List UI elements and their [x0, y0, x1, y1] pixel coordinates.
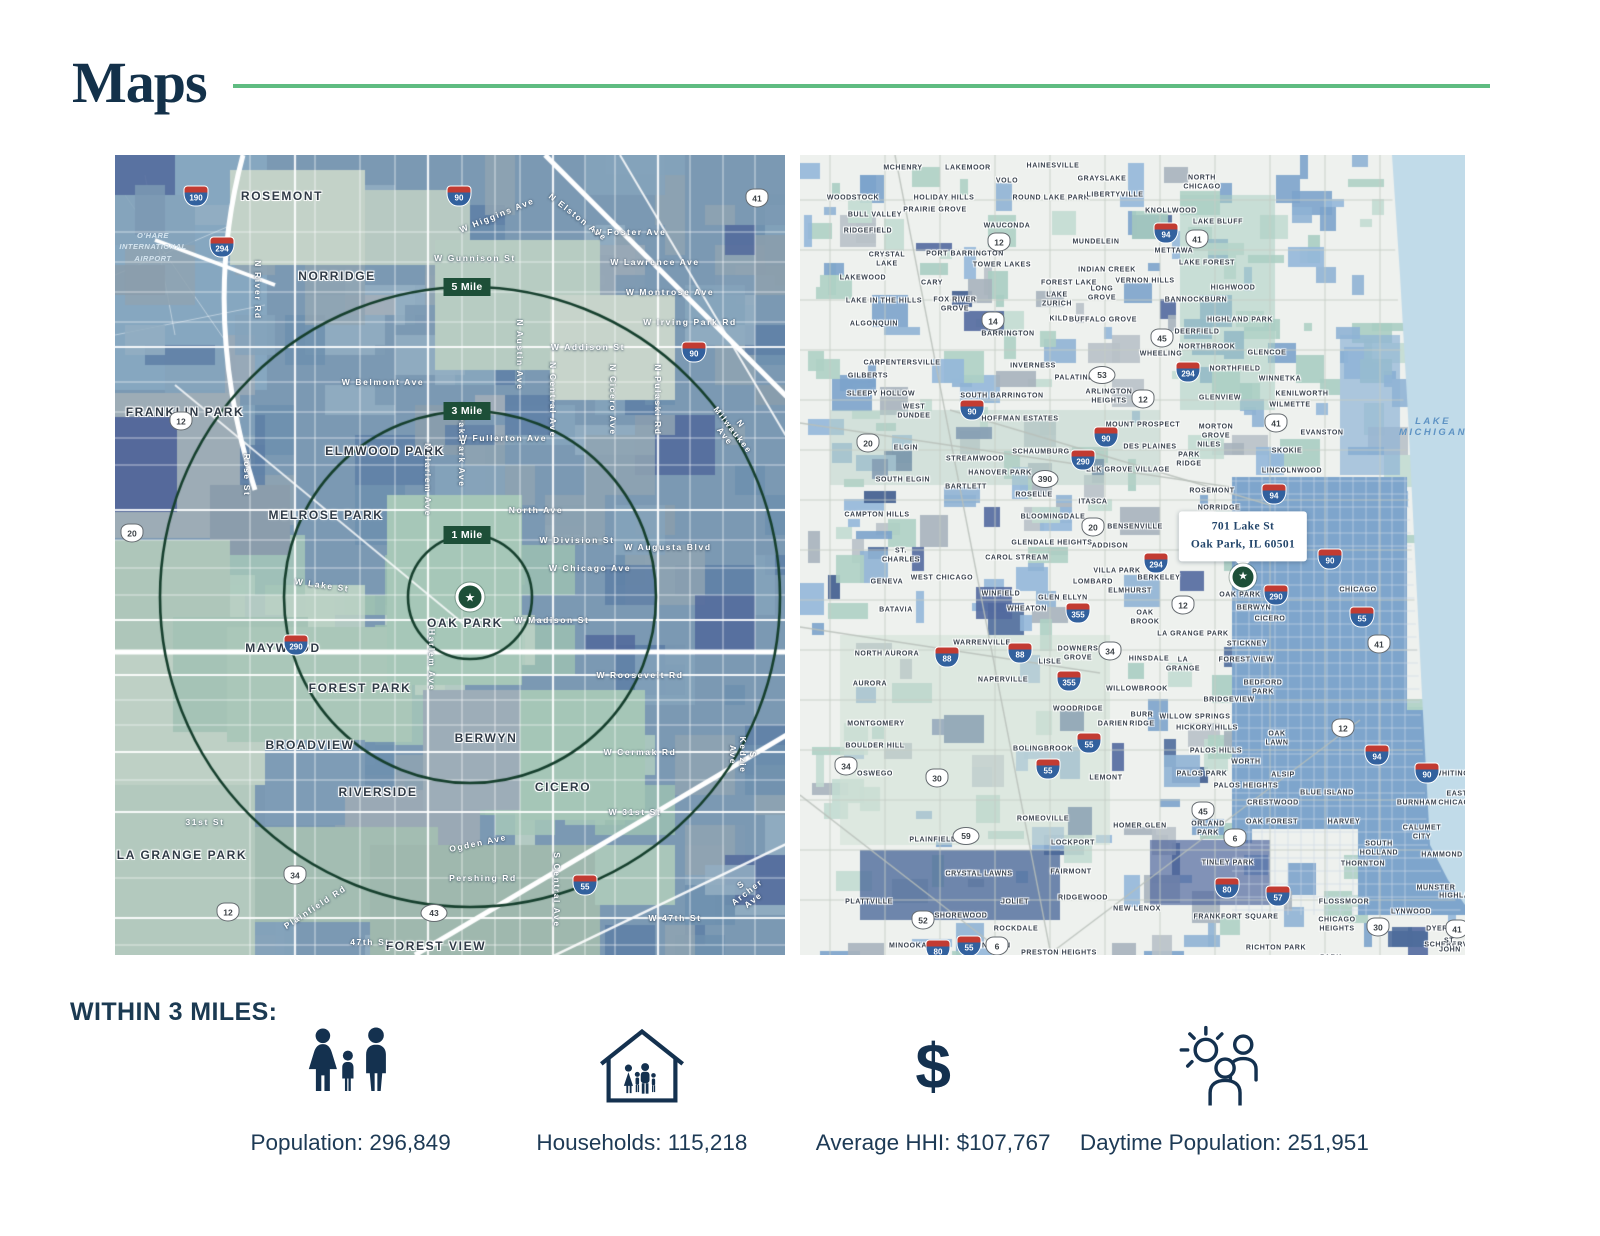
- daytime-population-icon: [1177, 1018, 1271, 1114]
- map-city-label: MUNSTER: [1417, 883, 1456, 892]
- region-map-overlay: MCHENRYLAKEMOORVOLOHAINESVILLEGRAYSLAKEN…: [800, 155, 1465, 955]
- map-street-label: N River Rd: [253, 260, 263, 319]
- highway-shield-52: 52: [912, 911, 935, 930]
- map-city-label: LIBERTYVILLE: [1087, 190, 1144, 199]
- highway-shield-290: 290: [1071, 450, 1096, 471]
- map-street-label: N Central Ave: [548, 362, 558, 438]
- map-city-label: METTAWA: [1155, 246, 1194, 255]
- highway-shield-59: 59: [953, 827, 980, 845]
- map-city-label: BLOOMINGDALE: [1021, 512, 1086, 521]
- map-city-label: CRYSTAL LAWNS: [945, 869, 1012, 878]
- map-city-label: PLAINFIELD: [909, 835, 956, 844]
- map-city-label: STREAMWOOD: [946, 454, 1004, 463]
- average-hhi-value: Average HHI: $107,767: [816, 1130, 1051, 1156]
- map-city-label: CICERO: [535, 780, 591, 794]
- map-city-label: WAUCONDA: [984, 221, 1031, 230]
- map-city-label: MORTON GROVE: [1199, 423, 1234, 442]
- map-street-label: N Milwaukee Ave: [704, 398, 763, 461]
- map-street-label: W Augusta Blvd: [624, 542, 711, 552]
- map-city-label: PARK RIDGE: [1176, 451, 1201, 470]
- map-city-label: LOCKPORT: [1051, 838, 1095, 847]
- map-city-label: MCHENRY: [883, 163, 922, 172]
- stat-households: Households: 115,218: [496, 1018, 787, 1156]
- highway-shield-14: 14: [982, 312, 1005, 331]
- map-city-label: PALOS HILLS: [1190, 746, 1242, 755]
- map-street-label: W Lawrence Ave: [610, 257, 699, 267]
- map-street-label: N Oak Park Ave: [457, 402, 467, 487]
- map-city-label: DYER: [1426, 924, 1448, 933]
- highway-shield-55: 55: [1077, 733, 1102, 754]
- highway-shield-30: 30: [1367, 918, 1390, 937]
- map-city-label: STICKNEY: [1227, 639, 1267, 648]
- map-city-label: BOLINGBROOK: [1013, 744, 1073, 753]
- lake-michigan-label: LAKE MICHIGAN: [1399, 416, 1465, 438]
- map-city-label: HOLIDAY HILLS: [914, 193, 975, 202]
- map-street-label: N Pulaski Rd: [653, 364, 663, 435]
- callout-address-line2: Oak Park, IL 60501: [1191, 536, 1295, 554]
- map-city-label: NEW LENOX: [1113, 904, 1161, 913]
- map-city-label: KNOLLWOOD: [1145, 206, 1197, 215]
- map-city-label: HOMER GLEN: [1113, 821, 1166, 830]
- map-city-label: SHOREWOOD: [935, 911, 988, 920]
- map-city-label: GLENDALE HEIGHTS: [1011, 538, 1092, 547]
- map-city-label: FRANKLIN PARK: [126, 405, 245, 419]
- map-city-label: FOX RIVER GROVE: [933, 296, 976, 315]
- map-city-label: BURNHAM: [1397, 798, 1437, 807]
- map-city-label: ELGIN: [894, 443, 918, 452]
- map-city-label: NORTH AURORA: [855, 649, 920, 658]
- highway-shield-55: 55: [957, 936, 982, 956]
- highway-shield-34: 34: [284, 866, 307, 885]
- map-street-label: S Archer Ave: [723, 868, 771, 915]
- highway-shield-294: 294: [1176, 362, 1201, 383]
- map-city-label: WILLOW SPRINGS: [1159, 712, 1230, 721]
- map-city-label: BUFFALO GROVE: [1069, 315, 1137, 324]
- map-city-label: NORRIDGE: [298, 269, 375, 283]
- title-rule: [233, 84, 1490, 88]
- stats-row: Population: 296,849: [205, 1018, 1370, 1156]
- map-city-label: OAK LAWN: [1265, 730, 1288, 749]
- highway-shield-12: 12: [1132, 390, 1155, 409]
- ring-distance-badge: 5 Mile: [444, 278, 491, 296]
- map-city-label: BERWYN: [1237, 603, 1272, 612]
- map-city-label: ELMWOOD PARK: [325, 444, 445, 458]
- map-city-label: ROCKDALE: [994, 924, 1038, 933]
- map-city-label: FOREST PARK: [309, 681, 412, 695]
- map-street-label: W Higgins Ave: [458, 195, 536, 234]
- map-city-label: LOMBARD: [1073, 577, 1113, 586]
- map-city-label: ROMEOVILLE: [1017, 814, 1069, 823]
- map-city-label: ORLAND PARK: [1191, 820, 1225, 839]
- map-city-label: ST. JOHN: [1439, 937, 1461, 955]
- map-city-label: EVANSTON: [1300, 428, 1343, 437]
- highway-shield-90: 90: [682, 342, 707, 363]
- map-city-label: BULL VALLEY: [848, 210, 902, 219]
- map-city-label: LEMONT: [1089, 773, 1122, 782]
- map-city-label: RIDGEWOOD: [1058, 893, 1108, 902]
- map-street-label: W Addison St: [551, 342, 625, 352]
- map-city-label: HIGHLAND: [1439, 891, 1465, 900]
- map-city-label: THORNTON: [1341, 859, 1385, 868]
- map-street-label: W Madison St: [515, 615, 590, 625]
- page-header: Maps: [72, 54, 1490, 112]
- highway-shield-390: 390: [1032, 470, 1059, 488]
- highway-shield-90: 90: [447, 186, 472, 207]
- map-city-label: GRAYSLAKE: [1078, 174, 1127, 183]
- map-city-label: SLEEPY HOLLOW: [847, 389, 915, 398]
- map-city-label: DOWNERS GROVE: [1058, 645, 1099, 664]
- stat-population: Population: 296,849: [205, 1018, 496, 1156]
- map-city-label: LISLE: [1039, 657, 1062, 666]
- map-city-label: INDIAN CREEK: [1078, 265, 1136, 274]
- highway-shield-34: 34: [1099, 642, 1122, 661]
- map-city-label: OAK PARK: [1219, 590, 1261, 599]
- highway-shield-55: 55: [573, 875, 598, 896]
- highway-shield-294: 294: [1144, 553, 1169, 574]
- airport-label: O'HARE INTERNATIONAL AIRPORT: [119, 230, 186, 264]
- highway-shield-41: 41: [1446, 920, 1466, 939]
- map-street-label: Plainfield Rd: [282, 883, 348, 931]
- map-street-label: N Austin Ave: [515, 319, 525, 390]
- map-street-label: 47th St: [350, 937, 390, 947]
- map-city-label: OAK PARK: [427, 616, 503, 630]
- map-city-label: RIDGEFIELD: [844, 226, 892, 235]
- map-city-label: MELROSE PARK: [269, 508, 384, 522]
- highway-shield-94: 94: [1365, 745, 1390, 766]
- highway-shield-20: 20: [857, 434, 880, 453]
- map-city-label: GLEN ELLYN: [1038, 593, 1088, 602]
- highway-shield-6: 6: [986, 937, 1009, 956]
- map-city-label: JOLIET: [1001, 897, 1029, 906]
- map-city-label: FRANKFORT SQUARE: [1193, 912, 1278, 921]
- map-city-label: HIGHLAND PARK: [1207, 315, 1273, 324]
- highway-shield-57: 57: [1266, 886, 1291, 907]
- highway-shield-12: 12: [1332, 719, 1355, 738]
- map-city-label: WARRENVILLE: [953, 638, 1011, 647]
- highway-shield-94: 94: [1154, 223, 1179, 244]
- map-city-label: LAKE ZURICH: [1042, 291, 1072, 310]
- map-city-label: CHANNAHON: [959, 941, 1010, 950]
- map-street-label: W Chicago Ave: [549, 563, 631, 573]
- map-city-label: LYNWOOD: [1391, 907, 1431, 916]
- highway-shield-34: 34: [835, 757, 858, 776]
- highway-shield-12: 12: [217, 903, 240, 922]
- map-city-label: ARLINGTON HEIGHTS: [1086, 388, 1133, 407]
- highway-shield-30: 30: [926, 769, 949, 788]
- map-city-label: PRAIRIE GROVE: [903, 205, 966, 214]
- highway-shield-12: 12: [988, 233, 1011, 252]
- map-city-label: BOULDER HILL: [845, 741, 904, 750]
- highway-shield-355: 355: [1066, 603, 1091, 624]
- map-city-label: VILLA PARK: [1093, 566, 1140, 575]
- map-street-label: W Division St: [539, 535, 614, 545]
- highway-shield-41: 41: [746, 189, 769, 208]
- highway-shield-290: 290: [284, 635, 309, 656]
- map-city-label: CALUMET CITY: [1403, 824, 1441, 843]
- stat-daytime-population: Daytime Population: 251,951: [1079, 1018, 1370, 1156]
- map-city-label: CHICAGO: [1339, 585, 1376, 594]
- map-city-label: OAK FOREST: [1246, 817, 1298, 826]
- map-city-label: WILLOWBROOK: [1106, 684, 1168, 693]
- callout-address-line1: 701 Lake St: [1191, 518, 1295, 536]
- map-city-label: BARTLETT: [945, 482, 987, 491]
- map-city-label: SOUTH BARRINGTON: [960, 391, 1043, 400]
- map-city-label: WOODRIDGE: [1053, 704, 1103, 713]
- map-city-label: LA GRANGE PARK: [1157, 629, 1228, 638]
- map-street-label: W Belmont Ave: [342, 377, 425, 387]
- map-city-label: GENEVA: [871, 577, 904, 586]
- map-street-label: S Central Ave: [552, 852, 562, 927]
- highway-shield-55: 55: [1036, 759, 1061, 780]
- map-city-label: ROUND LAKE PARK: [1013, 193, 1090, 202]
- population-value: Population: 296,849: [251, 1130, 451, 1156]
- map-city-label: CARPENTERSVILLE: [863, 358, 940, 367]
- map-city-label: NAPERVILLE: [978, 675, 1028, 684]
- map-city-label: FOREST VIEW: [386, 939, 486, 953]
- map-city-label: PRESTON HEIGHTS: [1021, 948, 1097, 955]
- radius-map[interactable]: ROSEMONTNORRIDGEFRANKLIN PARKELMWOOD PAR…: [115, 155, 785, 955]
- map-city-label: MOUNT PROSPECT: [1106, 420, 1181, 429]
- map-city-label: MONTGOMERY: [847, 719, 904, 728]
- map-city-label: WINFIELD: [982, 589, 1021, 598]
- map-city-label: SCHERERVILLE: [1424, 940, 1465, 949]
- highway-shield-88: 88: [935, 647, 960, 668]
- highway-shield-12: 12: [1172, 596, 1195, 615]
- map-city-label: BARRINGTON: [981, 329, 1034, 338]
- map-city-label: ELK GROVE VILLAGE: [1086, 465, 1170, 474]
- map-city-label: SOUTH HOLLAND: [1360, 840, 1398, 859]
- map-city-label: GLENCOE: [1248, 348, 1287, 357]
- map-city-label: TINLEY PARK: [1202, 858, 1255, 867]
- map-city-label: WEST DUNDEE: [897, 403, 930, 422]
- map-city-label: BRIDGEVIEW: [1203, 695, 1254, 704]
- map-street-label: W Fullerton Ave: [459, 433, 547, 443]
- highway-shield-90: 90: [960, 400, 985, 421]
- map-city-label: BLUE ISLAND: [1300, 788, 1354, 797]
- page-title: Maps: [72, 54, 207, 112]
- map-city-label: NILES: [1197, 440, 1221, 449]
- map-city-label: ST. CHARLES: [882, 547, 920, 566]
- map-city-label: PORT BARRINGTON: [926, 249, 1004, 258]
- map-city-label: SKOKIE: [1272, 446, 1302, 455]
- map-city-label: FAIRMONT: [1050, 867, 1091, 876]
- map-city-label: TOWER LAKES: [973, 260, 1031, 269]
- highway-shield-190: 190: [184, 186, 209, 207]
- map-city-label: LA GRANGE: [1166, 656, 1200, 675]
- map-street-label: W 31st St: [609, 807, 662, 817]
- households-value: Households: 115,218: [536, 1130, 747, 1156]
- map-city-label: BEDFORD PARK: [1244, 679, 1283, 698]
- map-city-label: MUNDELEIN: [1072, 237, 1119, 246]
- map-city-label: VOLO: [996, 176, 1018, 185]
- map-city-label: ITASCA: [1078, 497, 1107, 506]
- map-street-label: W Lake St: [294, 576, 350, 594]
- stat-average-hhi: $ Average HHI: $107,767: [788, 1018, 1079, 1156]
- map-city-label: SCHAUMBURG: [1012, 447, 1069, 456]
- map-city-label: EAST CHICAGO: [1438, 790, 1465, 809]
- map-street-label: North Ave: [509, 505, 563, 515]
- map-city-label: BENSENVILLE: [1107, 522, 1163, 531]
- map-city-label: LAKE FOREST: [1179, 258, 1235, 267]
- map-street-label: W Montrose Ave: [626, 287, 714, 297]
- map-city-label: FOREST VIEW: [1219, 655, 1274, 664]
- map-city-label: PLATTVILLE: [845, 897, 893, 906]
- highway-shield-53: 53: [1089, 366, 1116, 384]
- highway-shield-55: 55: [1350, 607, 1375, 628]
- map-street-label: N Harlem Ave: [423, 443, 433, 517]
- map-city-label: PALATINE: [1055, 373, 1094, 382]
- map-city-label: BERWYN: [455, 731, 518, 745]
- map-city-label: CICERO: [1255, 614, 1286, 623]
- highway-shield-20: 20: [1082, 518, 1105, 537]
- highway-shield-290: 290: [1264, 585, 1289, 606]
- address-callout: 701 Lake St Oak Park, IL 60501: [1179, 511, 1307, 561]
- map-city-label: ROSEMONT: [241, 189, 323, 203]
- map-city-label: CAMPTON HILLS: [844, 510, 909, 519]
- highway-shield-41: 41: [1265, 414, 1288, 433]
- map-street-label: N Cicero Ave: [608, 364, 618, 435]
- map-city-label: ALGONQUIN: [850, 319, 898, 328]
- map-city-label: VERNON HILLS: [1115, 276, 1174, 285]
- map-city-label: PARK FOREST: [1315, 954, 1347, 955]
- map-city-label: LA GRANGE PARK: [117, 848, 247, 862]
- map-street-label: N Elston Ave: [547, 191, 609, 243]
- map-city-label: RIVERSIDE: [338, 785, 417, 799]
- map-city-label: WHEELING: [1140, 349, 1183, 358]
- map-city-label: MINOOKA: [889, 941, 927, 950]
- map-city-label: LAKE IN THE HILLS: [846, 296, 922, 305]
- map-city-label: HOFFMAN ESTATES: [981, 414, 1058, 423]
- map-city-label: WOODSTOCK: [827, 193, 879, 202]
- highway-shield-41: 41: [1368, 635, 1391, 654]
- map-city-label: ALSIP: [1271, 770, 1295, 779]
- map-city-label: LINCOLNWOOD: [1262, 466, 1322, 475]
- highway-shield-94: 94: [1262, 484, 1287, 505]
- map-city-label: AURORA: [853, 679, 887, 688]
- households-house-icon: [594, 1018, 690, 1114]
- map-city-label: CAROL STREAM: [985, 553, 1048, 562]
- map-city-label: HAINESVILLE: [1027, 161, 1080, 170]
- highway-shield-90: 90: [1415, 763, 1440, 784]
- highway-shield-45: 45: [1192, 802, 1215, 821]
- map-street-label: Harlem Ave: [427, 629, 437, 691]
- map-street-label: S Kedzie Ave: [728, 734, 758, 776]
- highway-shield-12: 12: [170, 412, 193, 431]
- daytime-population-value: Daytime Population: 251,951: [1080, 1130, 1369, 1156]
- highway-shield-45: 45: [1151, 329, 1174, 348]
- map-city-label: GLENVIEW: [1199, 393, 1241, 402]
- map-city-label: CARY: [921, 278, 943, 287]
- map-city-label: WORTH: [1231, 757, 1260, 766]
- map-city-label: BANNOCKBURN: [1165, 295, 1228, 304]
- map-city-label: SOUTH ELGIN: [876, 475, 930, 484]
- population-family-icon: [301, 1018, 401, 1114]
- map-city-label: HANOVER PARK: [968, 468, 1031, 477]
- ring-distance-badge: 1 Mile: [444, 526, 491, 544]
- highway-shield-41: 41: [1186, 230, 1209, 249]
- map-city-label: OAK BROOK: [1130, 609, 1159, 628]
- map-city-label: HINSDALE: [1129, 654, 1170, 663]
- map-city-label: WHITING: [1435, 769, 1465, 778]
- map-city-label: INVERNESS: [1010, 361, 1056, 370]
- map-city-label: WILMETTE: [1269, 400, 1310, 409]
- average-hhi-dollar-icon: $: [915, 1018, 951, 1114]
- map-city-label: HICKORY HILLS: [1176, 723, 1238, 732]
- maps-page: Maps ROSEMONTNORRIDGEFRANKLIN PARKELMWOO…: [0, 0, 1600, 1236]
- map-city-label: LAKEWOOD: [840, 273, 886, 282]
- map-city-label: HAMMOND: [1421, 850, 1463, 859]
- map-city-label: WHEATON: [1007, 604, 1047, 613]
- map-city-label: ROSELLE: [1015, 490, 1052, 499]
- map-street-label: Rose St: [242, 454, 252, 497]
- highway-shield-90: 90: [1318, 549, 1343, 570]
- map-city-label: GILBERTS: [848, 371, 888, 380]
- map-city-label: CRESTWOOD: [1247, 798, 1299, 807]
- map-street-label: W Irving Park Rd: [643, 317, 737, 327]
- map-city-label: LAKE BLUFF: [1193, 217, 1243, 226]
- map-city-label: FLOSSMOOR: [1319, 897, 1370, 906]
- map-street-label: 31st St: [185, 817, 224, 827]
- map-city-label: BURR RIDGE: [1129, 711, 1154, 730]
- map-city-label: ELMHURST: [1108, 586, 1152, 595]
- region-map[interactable]: MCHENRYLAKEMOORVOLOHAINESVILLEGRAYSLAKEN…: [800, 155, 1465, 955]
- highway-shield-80: 80: [926, 940, 951, 956]
- map-city-label: NORTHBROOK: [1179, 342, 1236, 351]
- map-street-label: Pershing Rd: [449, 873, 517, 883]
- map-city-label: PALOS HEIGHTS: [1214, 781, 1278, 790]
- map-city-label: NORTH CHICAGO: [1183, 174, 1220, 193]
- radius-map-overlay: ROSEMONTNORRIDGEFRANKLIN PARKELMWOOD PAR…: [115, 155, 785, 955]
- map-city-label: HIGHWOOD: [1211, 283, 1256, 292]
- highway-shield-88: 88: [1008, 643, 1033, 664]
- highway-shield-355: 355: [1057, 671, 1082, 692]
- highway-shield-43: 43: [421, 904, 448, 922]
- map-city-label: KILDEER: [1050, 314, 1085, 323]
- map-city-label: WEST CHICAGO: [911, 573, 973, 582]
- map-street-label: Ogden Ave: [448, 832, 507, 854]
- map-city-label: RICHTON PARK: [1246, 943, 1306, 952]
- map-city-label: DES PLAINES: [1123, 442, 1176, 451]
- map-city-label: NORTHFIELD: [1209, 364, 1260, 373]
- highway-shield-90: 90: [1094, 427, 1119, 448]
- highway-shield-294: 294: [210, 237, 235, 258]
- map-city-label: CHICAGO HEIGHTS: [1318, 916, 1355, 935]
- map-street-label: W Cermak Rd: [604, 747, 677, 757]
- map-city-label: KENILWORTH: [1275, 389, 1328, 398]
- map-city-label: FOREST LAKE: [1041, 278, 1097, 287]
- map-city-label: HARVEY: [1328, 817, 1361, 826]
- map-street-label: W Foster Ave: [594, 227, 667, 237]
- map-city-label: ROSEMONT: [1189, 486, 1234, 495]
- map-city-label: BERKELEY: [1138, 573, 1181, 582]
- map-city-label: ADDISON: [1092, 541, 1128, 550]
- map-city-label: DEERFIELD: [1174, 327, 1219, 336]
- map-city-label: WINNETKA: [1259, 374, 1302, 383]
- map-street-label: W Roosevelt Rd: [596, 670, 683, 680]
- map-city-label: LAKEMOOR: [945, 163, 991, 172]
- ring-distance-badge: 3 Mile: [444, 402, 491, 420]
- map-city-label: PALOS PARK: [1177, 769, 1228, 778]
- map-city-label: OSWEGO: [857, 769, 893, 778]
- map-street-label: W Gunnison St: [434, 253, 516, 263]
- map-city-label: BROADVIEW: [265, 738, 354, 752]
- map-city-label: BATAVIA: [879, 605, 913, 614]
- highway-shield-20: 20: [121, 524, 144, 543]
- highway-shield-80: 80: [1215, 878, 1240, 899]
- highway-shield-6: 6: [1224, 829, 1247, 848]
- map-city-label: DARIEN: [1098, 719, 1128, 728]
- map-city-label: MAYWOOD: [245, 641, 320, 655]
